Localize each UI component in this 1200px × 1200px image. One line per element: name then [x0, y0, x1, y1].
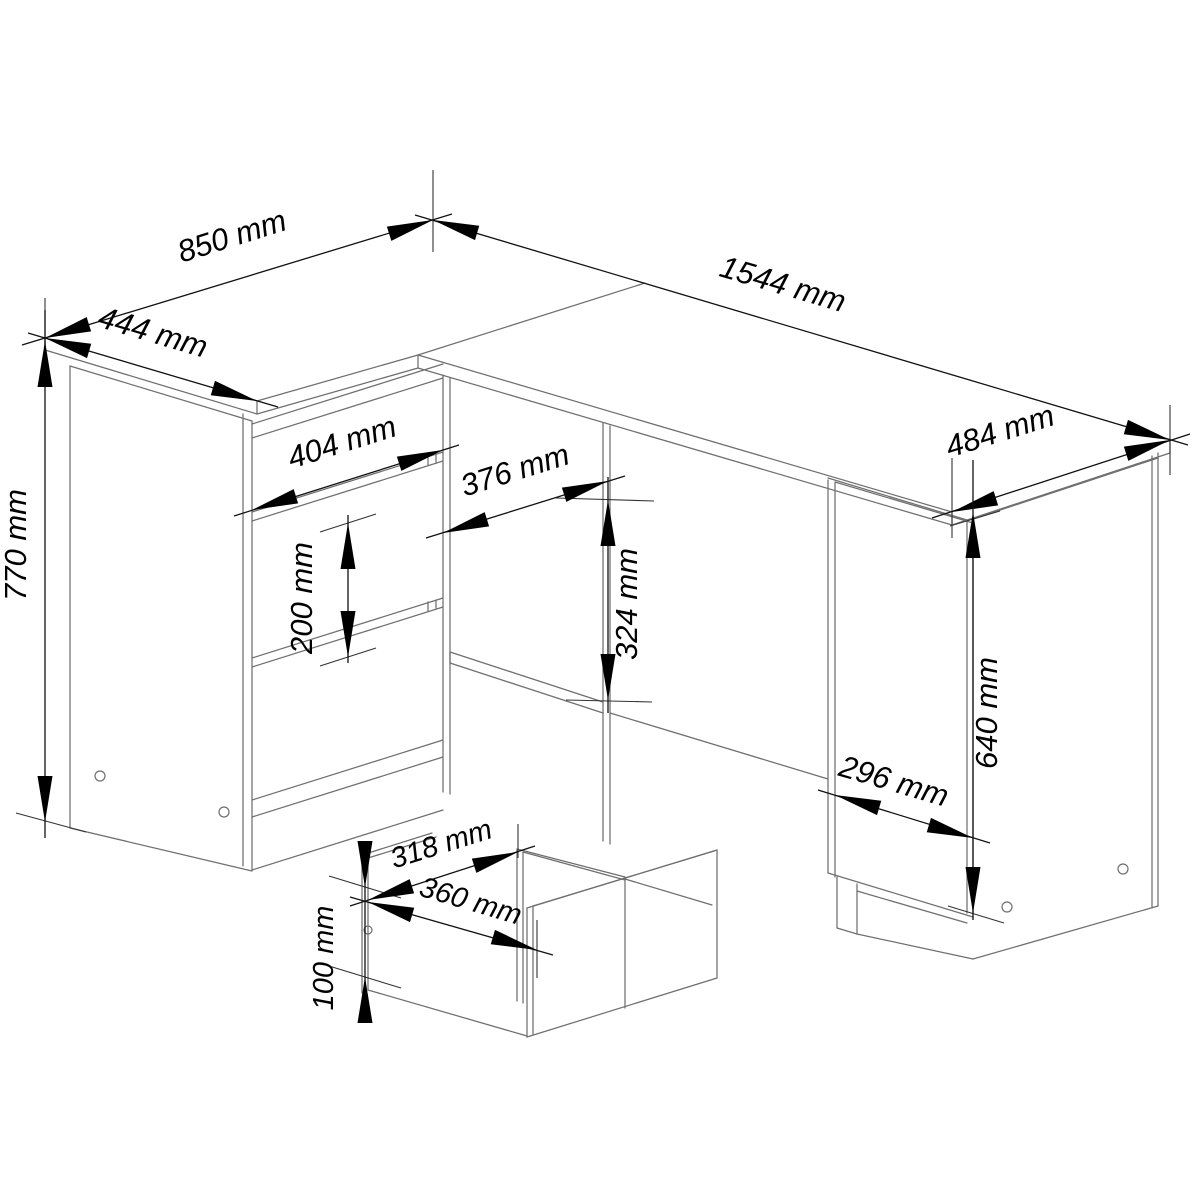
corner-desk-technical-drawing: 850 mm 1544 mm 444 mm 484 mm 770 mm 404 … [0, 0, 1200, 1200]
dim-drawer-box-height: 100 mm [308, 841, 373, 1023]
label-404mm: 404 mm [283, 409, 400, 476]
label-200mm: 200 mm [284, 542, 319, 655]
label-770mm: 770 mm [0, 489, 33, 601]
dim-return-top-width: 444 mm [28, 299, 278, 408]
dim-pedestal-height: 640 mm [966, 460, 1005, 920]
label-850mm: 850 mm [173, 203, 290, 270]
label-324mm: 324 mm [609, 548, 644, 660]
label-100mm: 100 mm [308, 906, 340, 1011]
dim-return-top-depth: 850 mm [22, 203, 452, 346]
dim-desktop-length: 1544 mm [415, 213, 1188, 447]
extension-lines [16, 170, 1170, 988]
dim-pedestal-width: 296 mm [818, 748, 990, 845]
dim-desk-height: 770 mm [0, 310, 53, 838]
cam-holes-left-panel [95, 771, 229, 817]
label-360mm: 360 mm [416, 871, 526, 931]
drawing-canvas: 850 mm 1544 mm 444 mm 484 mm 770 mm 404 … [0, 0, 1200, 1200]
label-376mm: 376 mm [456, 437, 573, 504]
label-640mm: 640 mm [969, 657, 1004, 769]
dim-knee-opening-height: 324 mm [601, 477, 645, 713]
dim-drawer-front-height: 200 mm [284, 515, 356, 663]
label-444mm: 444 mm [94, 299, 211, 364]
cam-holes-right-panel [1002, 864, 1128, 912]
label-1544mm: 1544 mm [716, 249, 850, 319]
dim-drawer-front-width: 404 mm [234, 409, 459, 518]
dim-knee-opening-width: 376 mm [426, 437, 625, 541]
label-484mm: 484 mm [941, 398, 1058, 465]
dim-desktop-end-depth: 484 mm [932, 398, 1190, 520]
label-296mm: 296 mm [834, 748, 952, 813]
drawer-front-panel [527, 850, 717, 1037]
